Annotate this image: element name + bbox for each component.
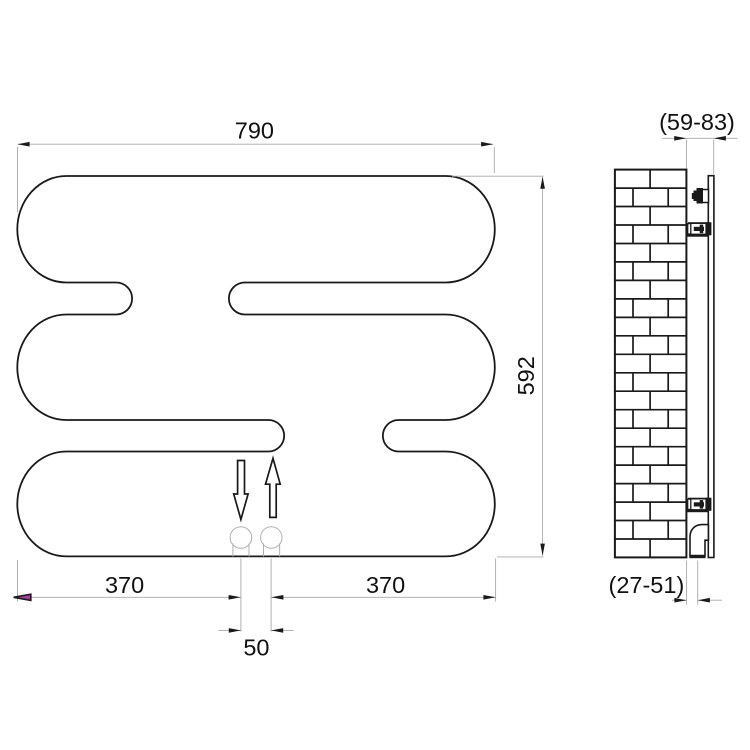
svg-text:(27-51): (27-51) — [609, 572, 685, 598]
svg-text:(59-83): (59-83) — [659, 109, 735, 135]
svg-text:50: 50 — [243, 635, 269, 661]
svg-text:790: 790 — [235, 118, 274, 144]
svg-text:370: 370 — [105, 572, 144, 598]
svg-text:592: 592 — [513, 356, 539, 395]
svg-text:370: 370 — [366, 572, 405, 598]
